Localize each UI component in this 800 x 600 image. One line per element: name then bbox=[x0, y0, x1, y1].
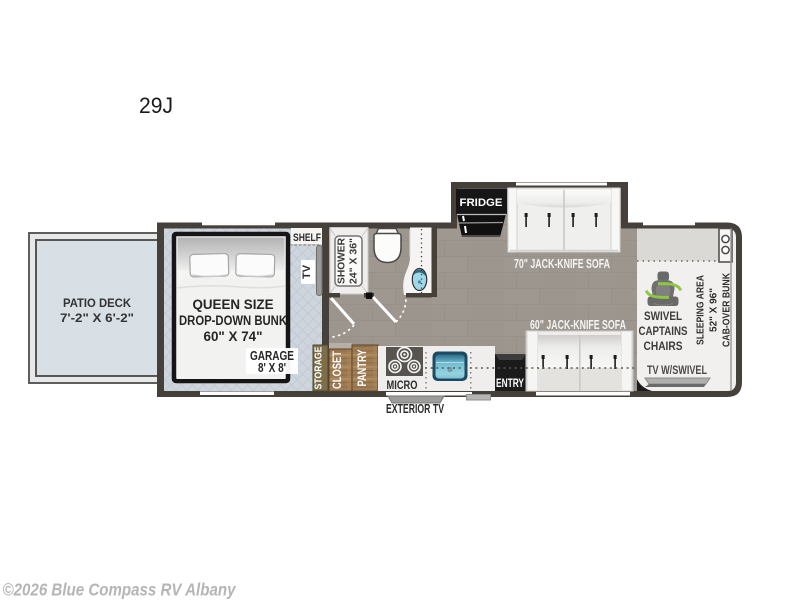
svg-text:SHELF: SHELF bbox=[293, 232, 321, 244]
svg-text:DROP-DOWN BUNK: DROP-DOWN BUNK bbox=[179, 313, 287, 328]
svg-text:EXTERIOR TV: EXTERIOR TV bbox=[386, 402, 444, 416]
svg-text:52" X 96": 52" X 96" bbox=[708, 288, 720, 332]
svg-text:60" X 74": 60" X 74" bbox=[204, 329, 263, 344]
svg-text:CLOSET: CLOSET bbox=[330, 350, 344, 389]
svg-text:60" JACK-KNIFE SOFA: 60" JACK-KNIFE SOFA bbox=[530, 318, 626, 332]
svg-text:PATIO DECK: PATIO DECK bbox=[63, 298, 132, 310]
svg-text:ENTRY: ENTRY bbox=[496, 378, 524, 390]
svg-text:24" X 36": 24" X 36" bbox=[348, 238, 360, 284]
svg-text:CAPTAINS: CAPTAINS bbox=[639, 326, 688, 338]
svg-text:STORAGE: STORAGE bbox=[313, 347, 325, 390]
svg-text:29J: 29J bbox=[139, 93, 173, 118]
svg-text:SLEEPING AREA: SLEEPING AREA bbox=[695, 275, 707, 345]
svg-text:MICRO: MICRO bbox=[387, 378, 418, 392]
svg-text:7'-2" X 6'-2": 7'-2" X 6'-2" bbox=[60, 313, 134, 325]
svg-text:TV W/SWIVEL: TV W/SWIVEL bbox=[647, 365, 707, 377]
svg-text:8' X 8': 8' X 8' bbox=[258, 361, 286, 375]
svg-text:PANTRY: PANTRY bbox=[355, 350, 369, 387]
svg-text:CAB-OVER BUNK: CAB-OVER BUNK bbox=[721, 273, 733, 347]
svg-text:FRIDGE: FRIDGE bbox=[460, 197, 503, 209]
svg-text:©2026 Blue Compass RV Albany: ©2026 Blue Compass RV Albany bbox=[3, 580, 237, 600]
svg-text:SWIVEL: SWIVEL bbox=[644, 311, 682, 323]
svg-text:QUEEN SIZE: QUEEN SIZE bbox=[193, 297, 274, 312]
svg-text:SHOWER: SHOWER bbox=[336, 238, 348, 284]
svg-text:CHAIRS: CHAIRS bbox=[644, 341, 683, 353]
svg-text:TV: TV bbox=[301, 264, 313, 279]
svg-text:70" JACK-KNIFE SOFA: 70" JACK-KNIFE SOFA bbox=[514, 257, 610, 271]
